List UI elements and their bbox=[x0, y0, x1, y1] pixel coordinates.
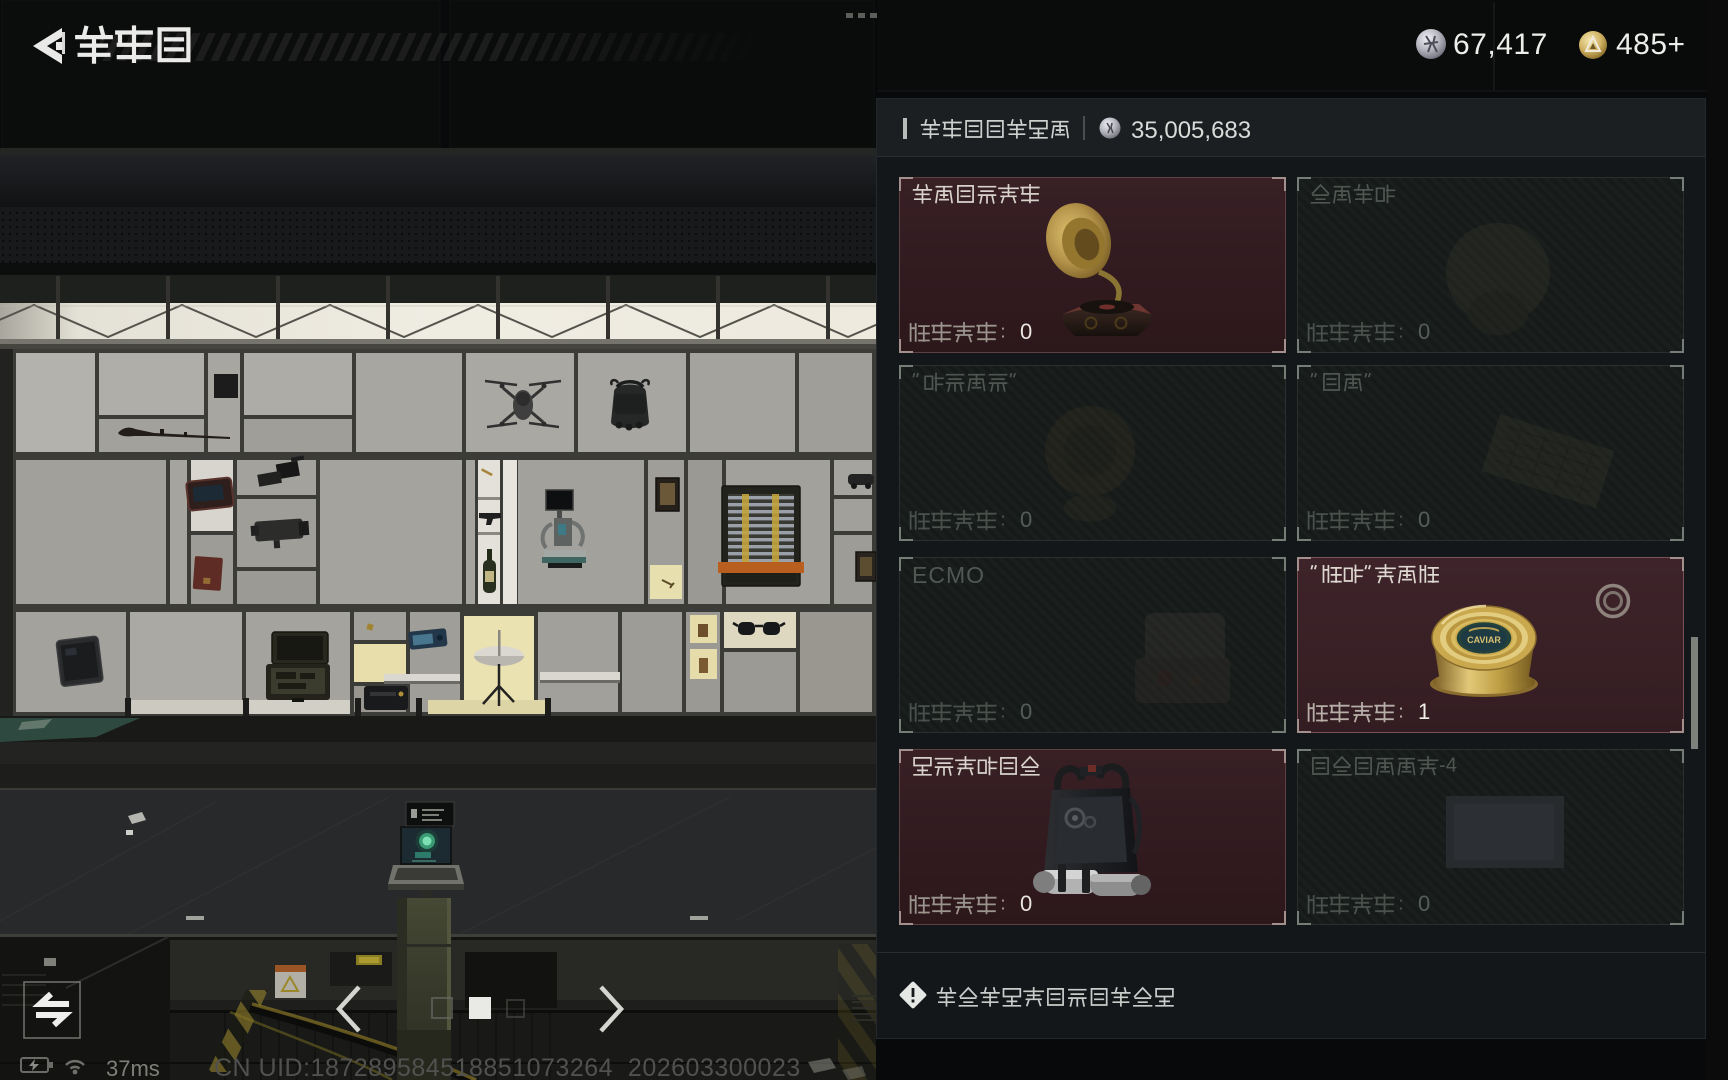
svg-text:-4: -4 bbox=[1439, 754, 1457, 776]
svg-text:CAVIAR: CAVIAR bbox=[1467, 635, 1501, 645]
